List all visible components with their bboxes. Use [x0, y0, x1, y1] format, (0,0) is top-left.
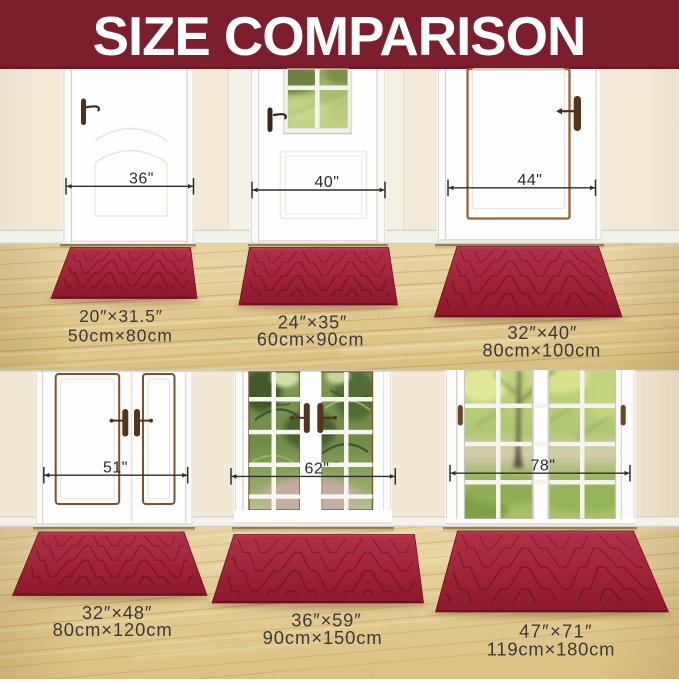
svg-text:78": 78"	[531, 457, 556, 474]
svg-text:44": 44"	[518, 172, 543, 189]
svg-text:51": 51"	[103, 459, 128, 476]
svg-text:90cm×150cm: 90cm×150cm	[263, 627, 383, 648]
svg-text:62": 62"	[305, 461, 330, 478]
svg-text:119cm×180cm: 119cm×180cm	[487, 638, 616, 659]
svg-text:80cm×120cm: 80cm×120cm	[53, 619, 173, 640]
svg-text:40": 40"	[315, 174, 340, 191]
svg-text:36": 36"	[129, 171, 154, 188]
svg-text:SIZE COMPARISON: SIZE COMPARISON	[93, 6, 586, 67]
svg-text:50cm×80cm: 50cm×80cm	[68, 326, 173, 346]
svg-text:80cm×100cm: 80cm×100cm	[482, 341, 601, 361]
svg-text:20″×31.5″: 20″×31.5″	[79, 306, 163, 326]
svg-text:60cm×90cm: 60cm×90cm	[257, 330, 365, 350]
